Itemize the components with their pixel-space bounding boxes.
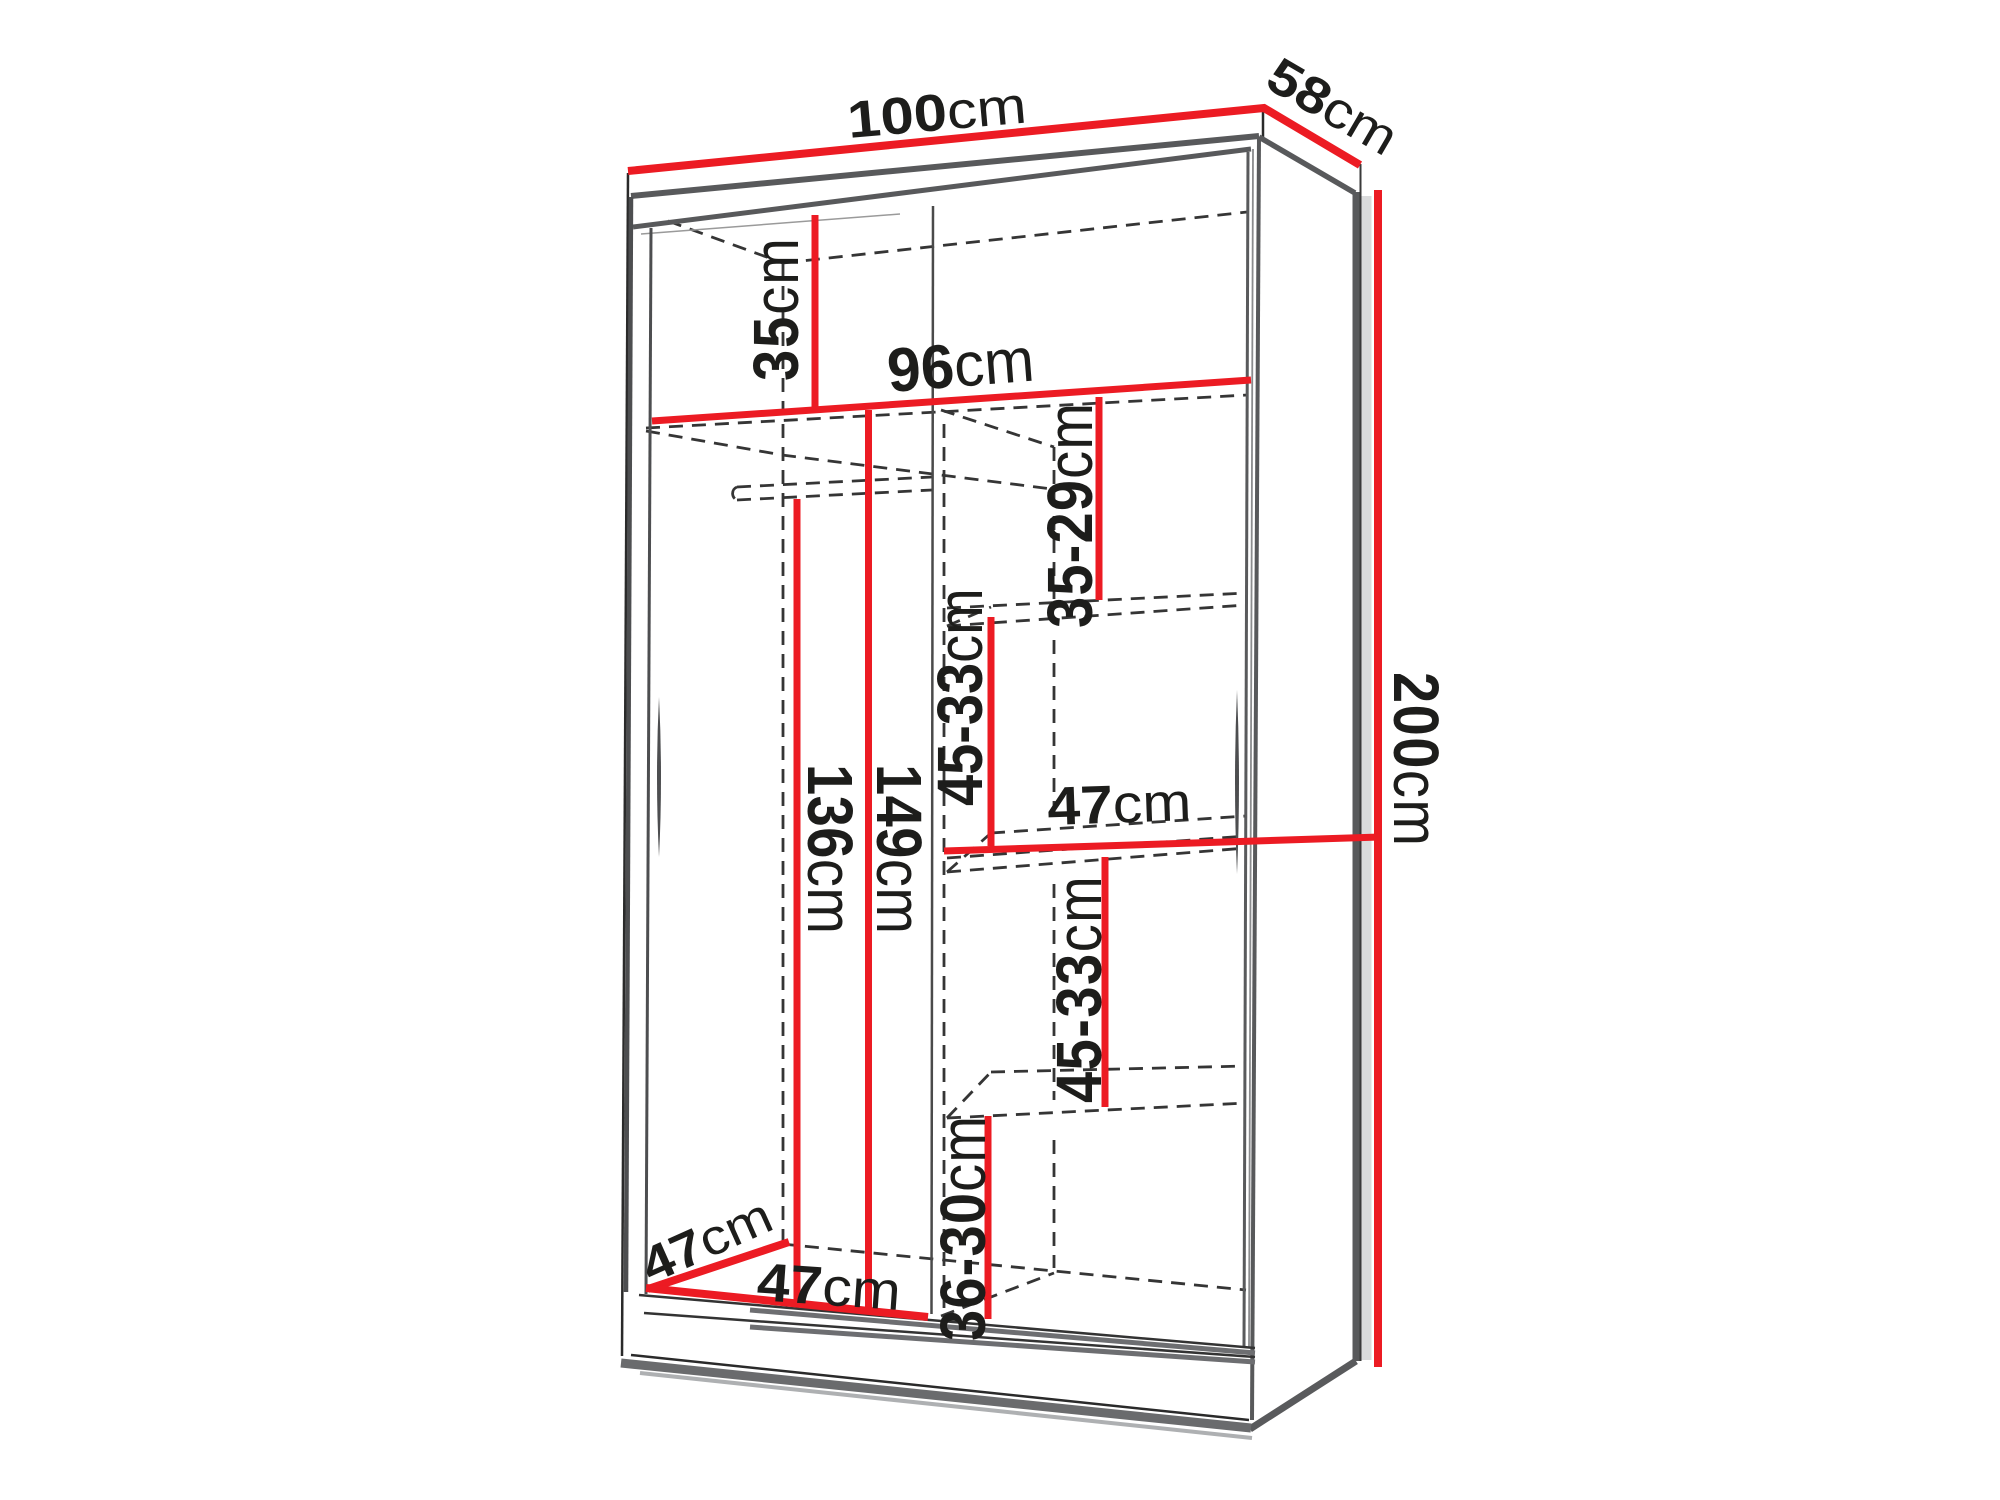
- svg-text:136cm: 136cm: [794, 764, 867, 935]
- svg-text:47cm: 47cm: [755, 1251, 903, 1321]
- svg-text:149cm: 149cm: [863, 764, 936, 935]
- svg-text:35cm: 35cm: [739, 236, 812, 381]
- svg-text:36-30cm: 36-30cm: [926, 1115, 999, 1341]
- svg-text:47cm: 47cm: [1046, 771, 1192, 836]
- svg-text:45-33cm: 45-33cm: [1042, 875, 1115, 1103]
- svg-text:35-29cm: 35-29cm: [1033, 402, 1106, 628]
- svg-text:96cm: 96cm: [885, 325, 1037, 405]
- svg-text:200cm: 200cm: [1380, 672, 1453, 848]
